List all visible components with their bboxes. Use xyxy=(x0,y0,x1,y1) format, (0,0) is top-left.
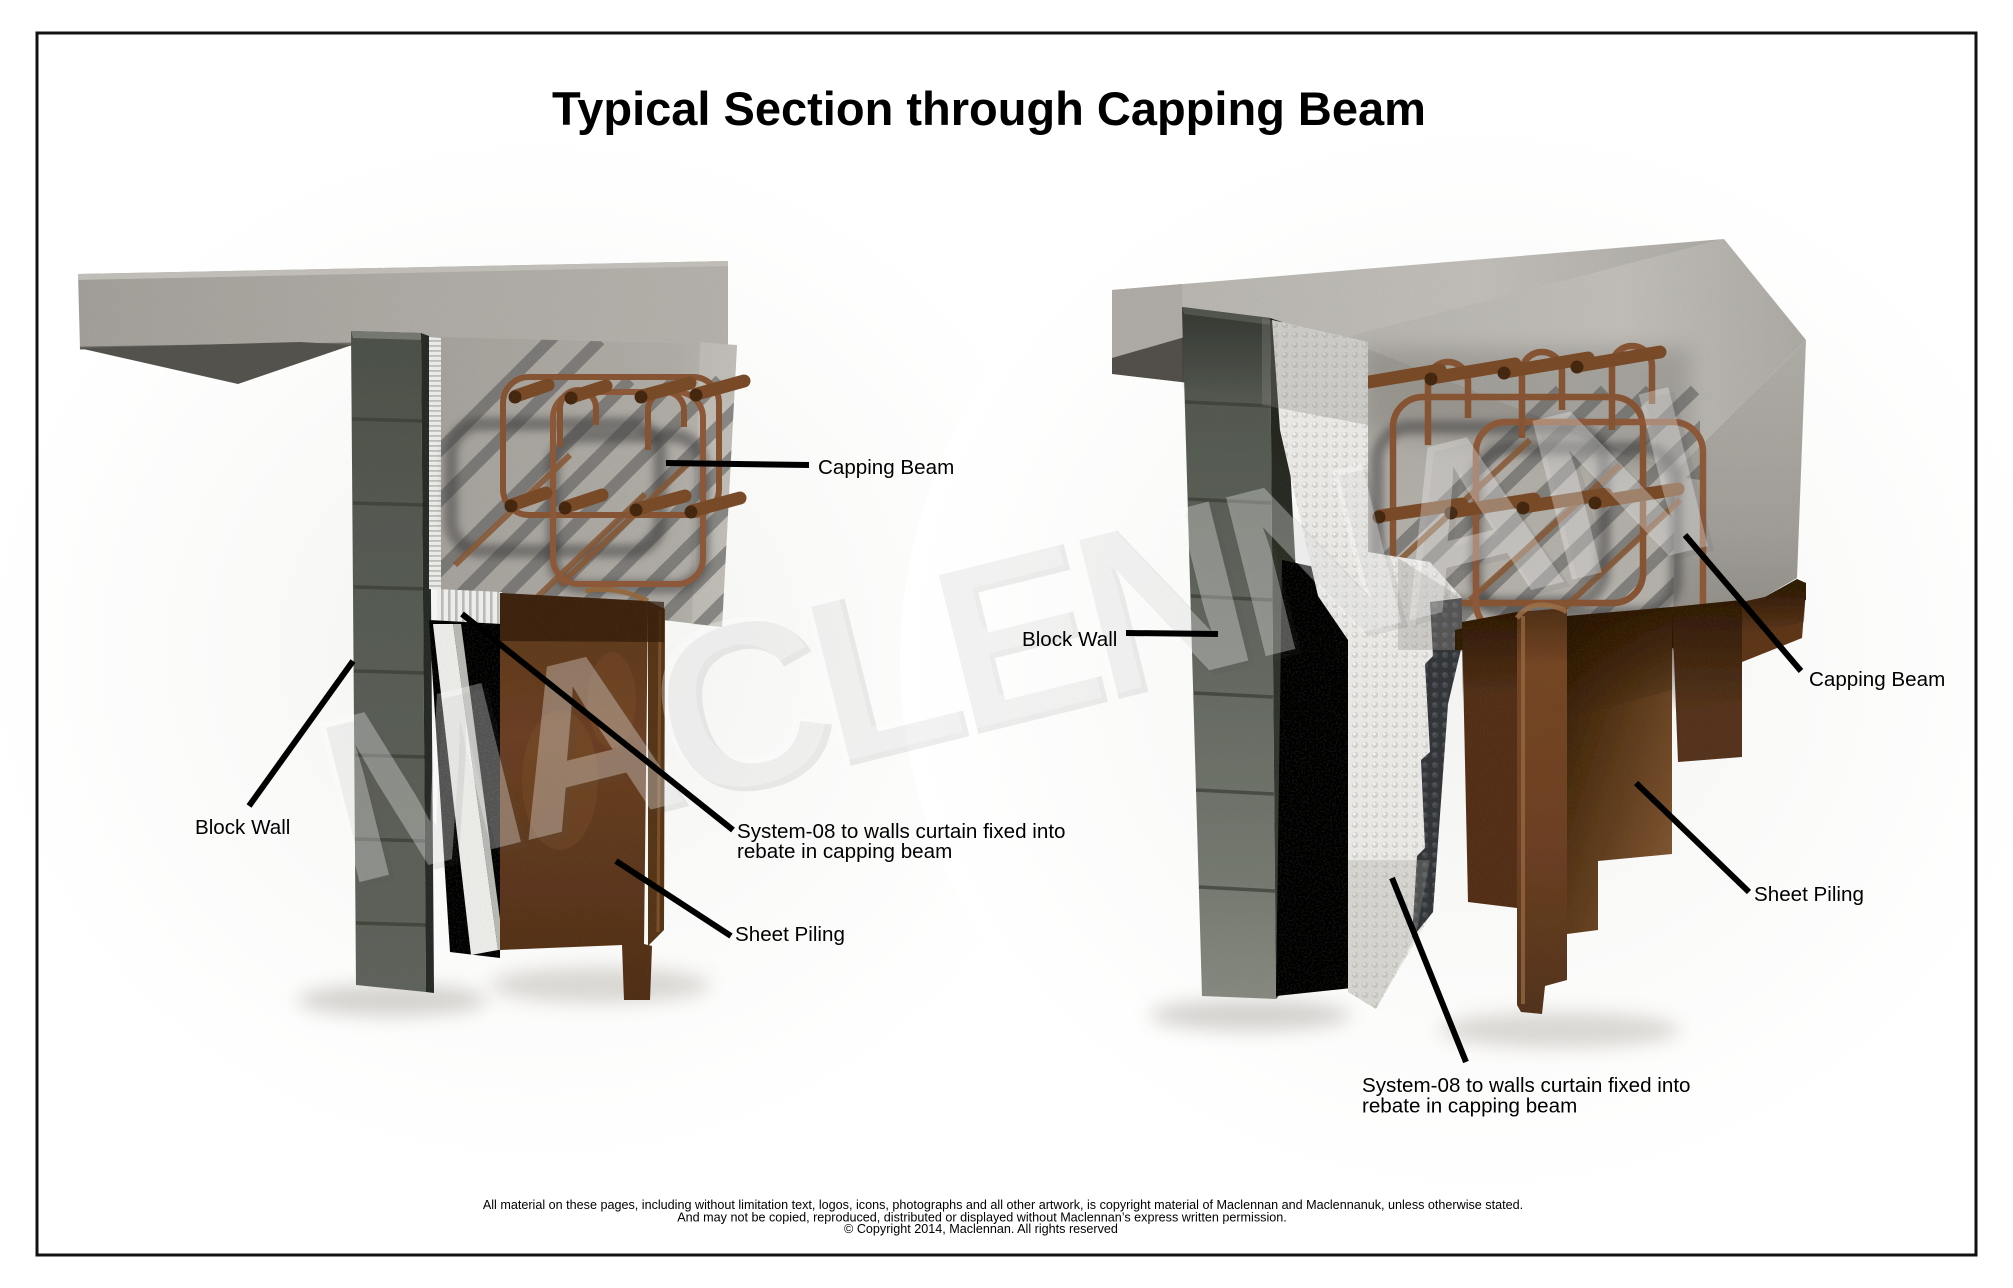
svg-text:rebate in capping beam: rebate in capping beam xyxy=(737,840,952,863)
svg-text:rebate in capping beam: rebate in capping beam xyxy=(1362,1095,1577,1118)
svg-text:Sheet Piling: Sheet Piling xyxy=(1754,883,1864,906)
svg-text:Typical Section through Cappin: Typical Section through Capping Beam xyxy=(552,82,1426,135)
svg-text:Block Wall: Block Wall xyxy=(1022,628,1117,651)
svg-text:Block Wall: Block Wall xyxy=(195,816,290,839)
svg-text:Capping Beam: Capping Beam xyxy=(1809,668,1945,691)
svg-text:© Copyright 2014, Maclennan.: © Copyright 2014, Maclennan. All rights … xyxy=(844,1222,1118,1236)
svg-text:Sheet Piling: Sheet Piling xyxy=(735,923,845,946)
svg-text:Capping Beam: Capping Beam xyxy=(818,456,954,479)
